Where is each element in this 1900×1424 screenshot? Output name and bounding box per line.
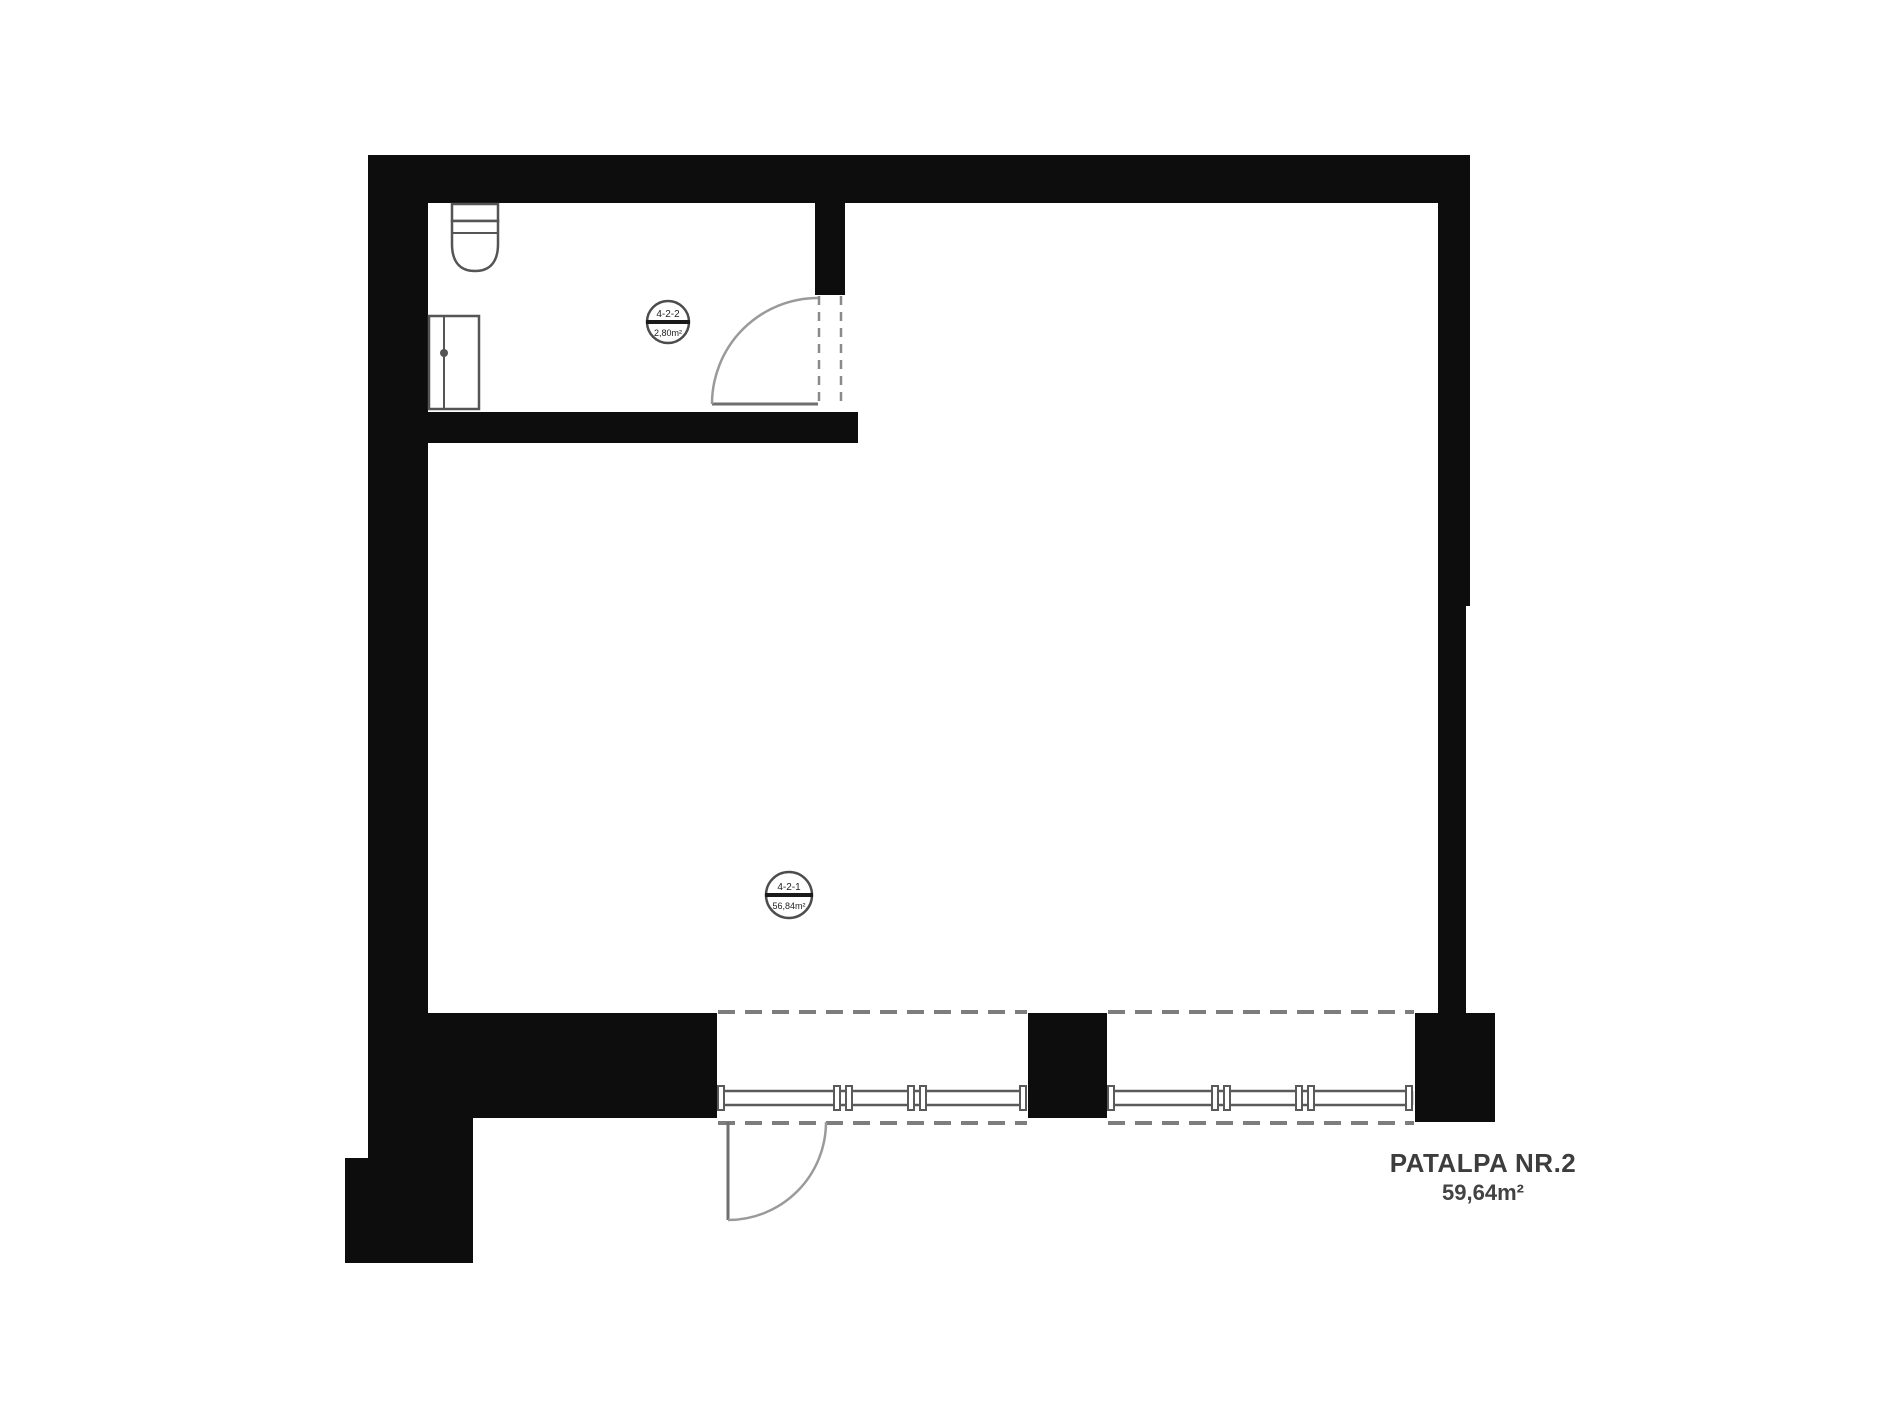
bathroom-south-wall — [368, 412, 858, 443]
appliance-icon — [429, 316, 479, 409]
window1-post — [718, 1086, 724, 1110]
bathroom-door-swing-arc — [712, 298, 818, 404]
floorplan-canvas: 4-2-2 2,80m² 4-2-1 56,84m² PATALPA NR.2 … — [0, 0, 1900, 1424]
appliance-body — [429, 316, 479, 409]
plan-label: PATALPA NR.2 59,64m² — [1390, 1148, 1577, 1205]
plan-title: PATALPA NR.2 — [1390, 1148, 1577, 1178]
main-tag-code: 4-2-1 — [777, 882, 801, 893]
entrance-opening — [718, 1012, 1027, 1220]
window1-post — [846, 1086, 852, 1110]
toilet-cistern — [452, 204, 498, 221]
toilet-icon — [452, 204, 498, 271]
window2-post — [1108, 1086, 1114, 1110]
plan-area: 59,64m² — [1442, 1180, 1524, 1205]
bottom-left-foot-block — [345, 1158, 473, 1263]
toilet-bowl — [452, 221, 498, 271]
window2-post — [1224, 1086, 1230, 1110]
window1-post — [834, 1086, 840, 1110]
bathroom-door — [712, 296, 841, 408]
entrance-door-swing-arc — [728, 1122, 826, 1220]
window2-post — [1308, 1086, 1314, 1110]
window2-post — [1406, 1086, 1412, 1110]
bathroom-tag-area: 2,80m² — [654, 328, 682, 338]
window1-post — [1020, 1086, 1026, 1110]
window-opening-2 — [1108, 1012, 1414, 1123]
bathroom-partition-wall — [815, 203, 845, 295]
bathroom-tag-code: 4-2-2 — [656, 309, 680, 320]
room-tag-main: 4-2-1 56,84m² — [765, 872, 813, 918]
bottom-wall-left-segment — [428, 1013, 717, 1118]
entrance-door — [728, 1122, 826, 1220]
window1-post — [920, 1086, 926, 1110]
window1-post — [908, 1086, 914, 1110]
bathroom-fixtures — [429, 204, 498, 409]
bottom-right-corner-block — [1415, 1013, 1495, 1122]
window2-post — [1212, 1086, 1218, 1110]
window-frame-2 — [1108, 1086, 1412, 1110]
right-wall-upper — [1438, 155, 1470, 606]
left-wall — [368, 155, 428, 1013]
right-wall-lower — [1438, 606, 1466, 1013]
room-tag-bathroom: 4-2-2 2,80m² — [646, 301, 690, 343]
top-wall — [368, 155, 1470, 203]
window2-post — [1296, 1086, 1302, 1110]
bottom-wall-pier — [1028, 1013, 1107, 1118]
window-frame-1 — [718, 1086, 1026, 1110]
appliance-knob — [440, 349, 448, 357]
main-tag-area: 56,84m² — [772, 901, 805, 911]
floorplan-drawing: 4-2-2 2,80m² 4-2-1 56,84m² PATALPA NR.2 … — [0, 0, 1900, 1424]
